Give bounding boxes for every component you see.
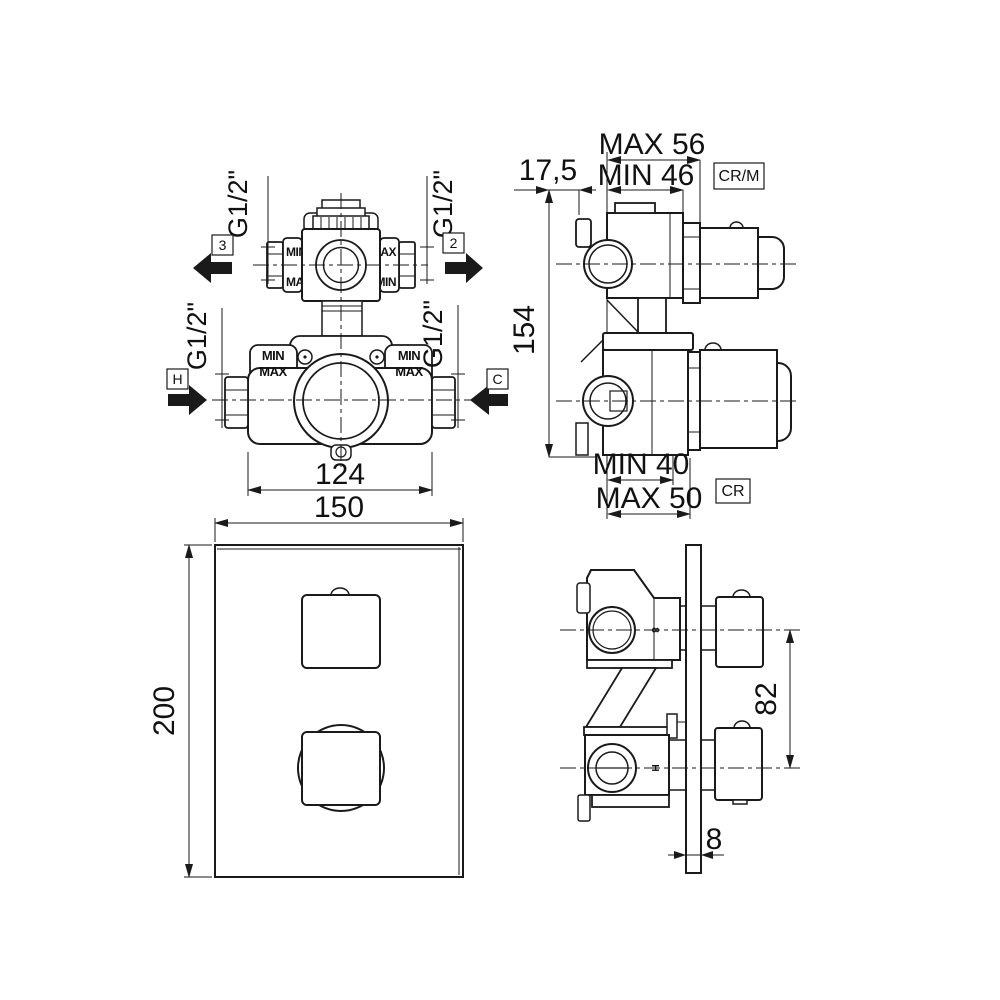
dim-bottom-depth-min: MIN 40 [593,448,690,481]
drawing-canvas: MIN MAX MAX MIN MIN MAX MIN MAX [0,0,1000,1000]
finish-top-label: CR/M [719,168,760,185]
inlet-hot-label: H [172,371,182,387]
diverter-button [302,595,380,668]
lower-flange-max-left: MAX [259,364,287,379]
dim-rough-in-height: 154 [508,305,541,355]
outlet-3-arrow-icon [193,253,232,283]
inlet-cold-label: C [492,371,502,387]
trim-plate-side [686,545,701,873]
lower-flange-min-left: MIN [262,348,284,363]
dim-wall-offset: 17,5 [519,154,577,187]
outlet-3-label: 3 [219,237,227,253]
side-bottom-handle [700,350,777,448]
temperature-knob [302,732,380,805]
side-top-tab [576,219,591,247]
z-bracket-top [587,660,672,668]
dim-plate-thickness: 8 [706,823,723,856]
dim-handle-distance: 82 [750,682,783,715]
view-installed-side: 8 H 82 8 [560,545,802,873]
outlet-2-arrow-icon [445,253,483,283]
finish-bottom-label: CR [721,483,744,500]
technical-drawing-page: MIN MAX MAX MIN MIN MAX MIN MAX [0,0,1000,1000]
outlet-2-label: 2 [450,235,458,251]
dim-bottom-depth-max: MAX 50 [596,482,703,515]
installed-bottom-handle [715,728,762,800]
lower-flange-min-right: MIN [398,348,420,363]
installed-top-handle [716,597,763,667]
thread-label-top-left: G1/2" [223,170,253,238]
dim-top-depth-max: MAX 56 [599,128,706,161]
view-plate-front: 150 200 [148,491,463,877]
dim-top-depth-min: MIN 46 [598,159,695,192]
view-valve-side: 154 17,5 MAX 56 MIN 46 MIN 40 MAX 50 CR/… [508,128,800,519]
thread-label-top-right: G1/2" [428,170,458,238]
z-bracket-bottom [584,727,668,735]
cartridge-mark-bottom: H [649,764,660,771]
z-bracket-diagonal [586,668,656,727]
thread-label-bottom-right: G1/2" [418,300,448,368]
dim-valve-width: 124 [315,458,365,491]
dim-plate-height: 200 [148,686,181,736]
view-valve-front: MIN MAX MAX MIN MIN MAX MIN MAX [167,170,508,496]
cartridge-mark-top: 8 [649,627,660,633]
thread-label-bottom-left: G1/2" [182,302,212,370]
dim-plate-width: 150 [314,491,364,524]
side-top-handle [700,228,758,298]
